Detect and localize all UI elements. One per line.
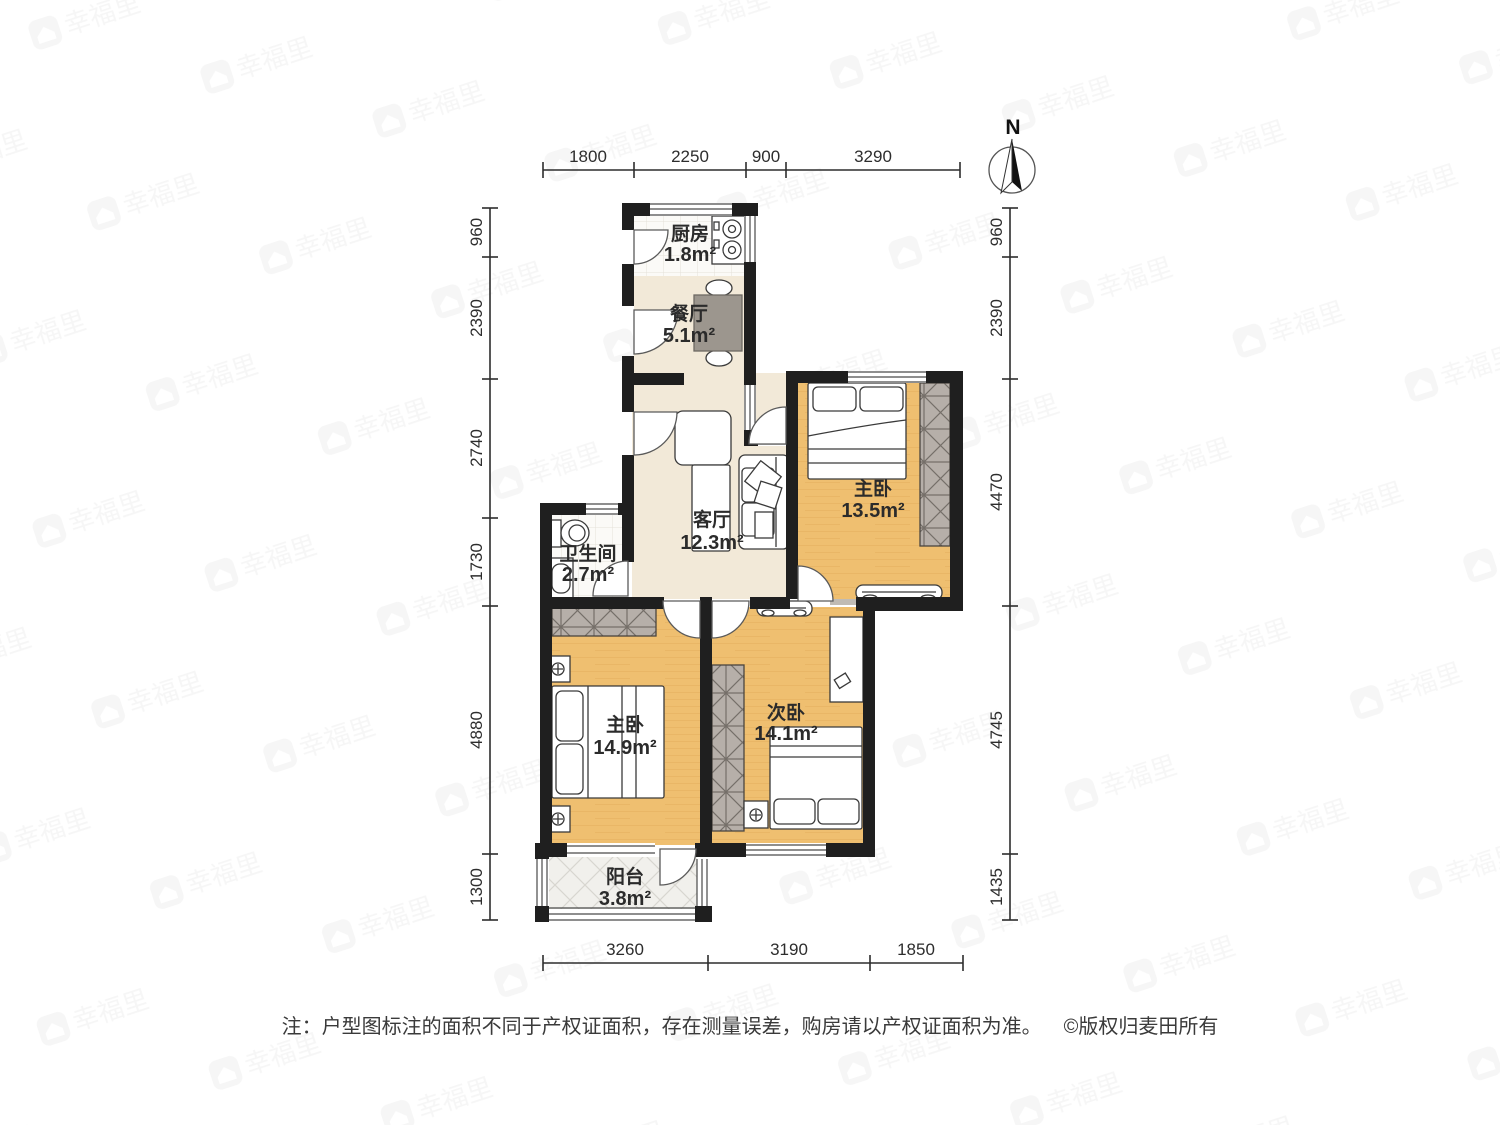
- dim-right-4: 1435: [987, 868, 1006, 906]
- window-bath-top: [586, 503, 618, 515]
- dim-top-1: 2250: [671, 147, 709, 166]
- dim-top-2: 900: [752, 147, 780, 166]
- room-label-balcony: 阳台: [606, 865, 644, 888]
- dim-left-5: 1300: [467, 868, 486, 906]
- disclaimer-text: 注：户型图标注的面积不同于产权证面积，存在测量误差，购房请以产权证面积为准。: [282, 1016, 1042, 1038]
- coffee-table: [675, 411, 731, 465]
- wardrobe-second: [712, 665, 744, 831]
- room-area-second: 14.1m²: [754, 723, 818, 745]
- dim-left-3: 1730: [467, 543, 486, 581]
- room-area-balcony: 3.8m²: [599, 888, 652, 910]
- copyright-text: ©版权归麦田所有: [1064, 1016, 1219, 1038]
- room-label-dining: 餐厅: [670, 302, 708, 325]
- footer-note: 注：户型图标注的面积不同于产权证面积，存在测量误差，购房请以产权证面积为准。©版…: [0, 1010, 1500, 1039]
- room-area-dining: 5.1m²: [663, 325, 716, 347]
- room-area-master-low: 14.9m²: [593, 737, 657, 759]
- room-area-master-top: 13.5m²: [841, 500, 905, 522]
- window-entry-side: [744, 385, 756, 430]
- dim-right-2: 4470: [987, 473, 1006, 511]
- desk: [830, 617, 863, 702]
- dim-bottom-1: 3190: [770, 940, 808, 959]
- dim-left-0: 960: [467, 218, 486, 246]
- stove-icon: [712, 216, 748, 264]
- dim-right-3: 4745: [987, 711, 1006, 749]
- wardrobe-master-top: [920, 383, 950, 546]
- window-master-top: [848, 371, 926, 383]
- north-label: N: [1005, 116, 1020, 139]
- window-balcony-inner: [567, 843, 655, 857]
- dim-right-0: 960: [987, 218, 1006, 246]
- dim-bottom-2: 1850: [897, 940, 935, 959]
- door-threshold: [830, 599, 856, 605]
- room-label-master-low: 主卧: [606, 714, 644, 736]
- bed-master-top: [808, 383, 906, 479]
- room-label-living: 客厅: [693, 508, 731, 531]
- floor-plan-canvas: 幸福里 幸福里: [0, 0, 1500, 1125]
- sofa: [739, 455, 789, 549]
- toilet-icon: [548, 520, 589, 547]
- room-area-bathroom: 2.7m²: [562, 564, 615, 586]
- window-second-bottom: [746, 843, 826, 857]
- window-kitchen-right: [744, 216, 756, 262]
- dim-left-4: 4880: [467, 711, 486, 749]
- dim-left-1: 2390: [467, 299, 486, 337]
- window-kitchen-top: [650, 203, 732, 216]
- dim-right-1: 2390: [987, 299, 1006, 337]
- room-label-bathroom: 卫生间: [559, 542, 616, 565]
- nightstand-icon: [744, 801, 768, 828]
- dim-top-3: 3290: [854, 147, 892, 166]
- room-label-kitchen: 厨房: [671, 222, 709, 245]
- room-label-second: 次卧: [767, 701, 805, 724]
- dim-top-0: 1800: [569, 147, 607, 166]
- floorplan-page: 幸福里 幸福里: [0, 0, 1500, 1125]
- dim-left-2: 2740: [467, 429, 486, 467]
- room-area-kitchen: 1.8m²: [664, 244, 717, 266]
- room-area-living: 12.3m²: [680, 532, 744, 554]
- room-label-master-top: 主卧: [854, 478, 892, 500]
- dim-bottom-0: 3260: [606, 940, 644, 959]
